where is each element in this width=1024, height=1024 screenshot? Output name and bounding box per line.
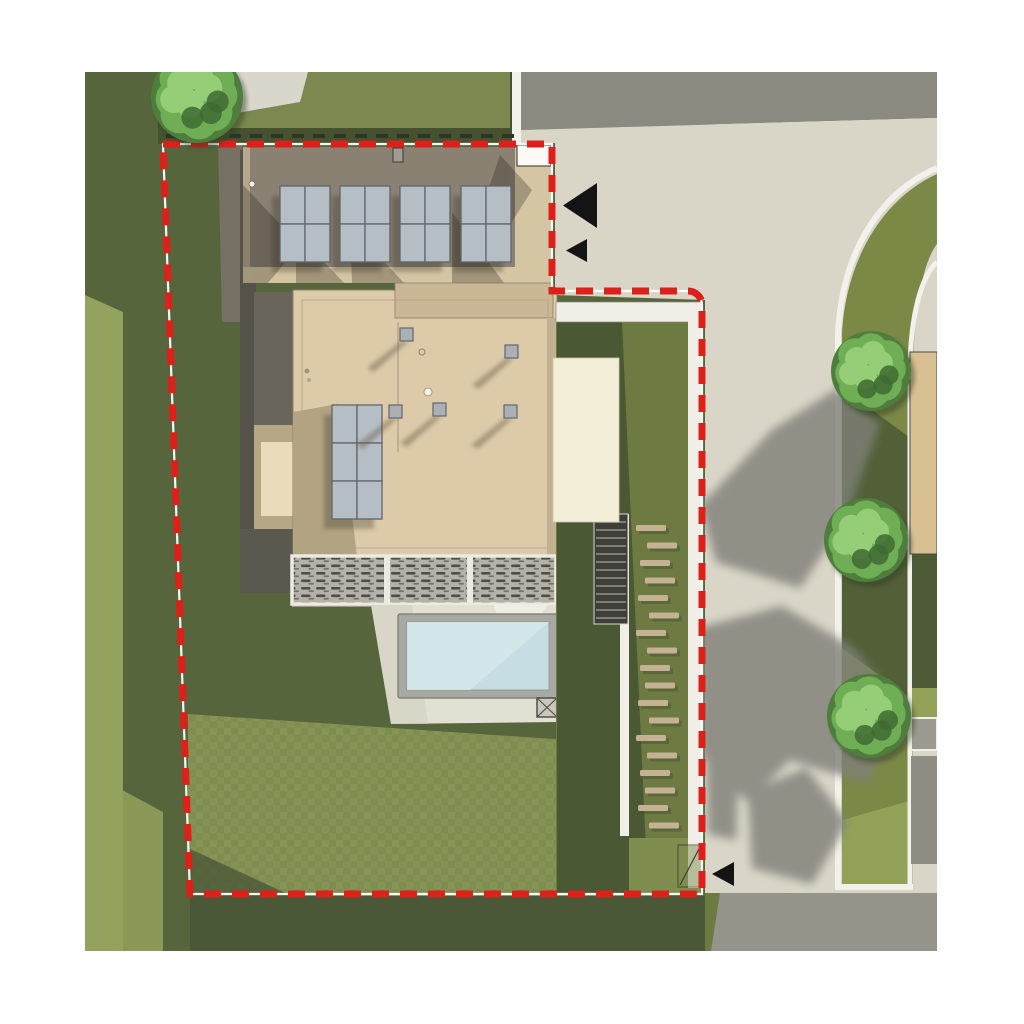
stepping-stone — [645, 683, 675, 689]
main-roof-north-band — [395, 283, 553, 318]
roof-vent-dot-2 — [424, 388, 432, 396]
solar-panel — [486, 224, 511, 262]
courtyard-patio — [261, 442, 294, 516]
stepping-stone — [649, 718, 679, 724]
roof-vent — [504, 405, 517, 418]
solar-panel — [332, 405, 357, 443]
solar-panel — [400, 186, 425, 224]
stepping-stone — [636, 525, 666, 531]
roof-vent-dot-4 — [307, 378, 311, 382]
drain-box — [537, 698, 557, 717]
solar-panel — [425, 186, 450, 224]
roof-vent — [400, 328, 413, 341]
solar-panel — [332, 443, 357, 481]
stepping-stone — [645, 578, 675, 584]
roof-dot — [249, 181, 255, 187]
solar-panel — [461, 186, 486, 224]
road-south-strip — [705, 893, 937, 951]
solar-panel — [400, 224, 425, 262]
garage-roof — [243, 145, 553, 283]
solar-group-3 — [392, 186, 450, 272]
roof-vent — [389, 405, 402, 418]
site-plan-page — [0, 0, 1024, 1024]
curb-north — [512, 72, 521, 143]
neighbor-lawn-east-light — [912, 688, 937, 718]
stepping-stone — [636, 630, 666, 636]
solar-panel — [340, 186, 365, 224]
louvre-deck — [292, 556, 556, 607]
stepping-stone — [647, 648, 677, 654]
solar-panel — [365, 224, 390, 262]
solar-group-1 — [272, 186, 330, 272]
stepping-stone — [649, 823, 679, 829]
stepping-stone — [645, 788, 675, 794]
solar-panel — [486, 186, 511, 224]
solar-panel — [340, 224, 365, 262]
stepping-stone — [638, 805, 668, 811]
deck-slat-field — [292, 556, 556, 604]
stepping-stone — [640, 560, 670, 566]
solar-array-lower — [324, 405, 382, 529]
south-shadow-lawn — [190, 896, 705, 951]
solar-panel — [305, 224, 330, 262]
neighbor-paving-east — [911, 756, 937, 864]
neighbor-lawn-east — [912, 554, 937, 688]
roof-vent-dot-3 — [305, 369, 310, 374]
stepping-stone — [649, 613, 679, 619]
stepping-stone — [640, 770, 670, 776]
wall-shadow-strip — [706, 722, 740, 840]
stepping-stone — [636, 735, 666, 741]
solar-group-4 — [453, 186, 511, 272]
garage-roof-edge-east — [515, 147, 553, 283]
neighbor-parcel-east — [910, 352, 937, 864]
solar-group-lower — [324, 405, 382, 529]
solar-group-2 — [332, 186, 390, 272]
solar-panel — [305, 186, 330, 224]
pergola-canopy — [553, 358, 619, 522]
stepping-stone — [638, 595, 668, 601]
stepping-stone — [640, 665, 670, 671]
solar-panel — [357, 481, 382, 519]
boundary-notch-structure — [517, 145, 551, 166]
solar-panel — [332, 481, 357, 519]
deck-post-1 — [384, 556, 390, 604]
main-house-roof — [293, 283, 557, 558]
stepping-stone — [647, 543, 677, 549]
road-south — [705, 893, 937, 951]
path-white-north — [556, 302, 702, 322]
solar-panel — [425, 224, 450, 262]
garden-stairs — [594, 514, 628, 624]
roof-vent — [505, 345, 518, 358]
solar-panel — [280, 186, 305, 224]
pool-terrace — [371, 605, 558, 724]
solar-panel — [357, 443, 382, 481]
corner-shed — [678, 845, 702, 887]
solar-panel — [365, 186, 390, 224]
roof-vent — [433, 403, 446, 416]
stepping-stone — [638, 700, 668, 706]
solar-panel — [461, 224, 486, 262]
stepping-stone — [647, 753, 677, 759]
solar-panel — [280, 224, 305, 262]
east-garden-strip — [553, 302, 702, 894]
deck-post-2 — [467, 556, 473, 604]
roof-hatch — [393, 148, 403, 162]
site-plan-image — [0, 0, 1024, 1024]
